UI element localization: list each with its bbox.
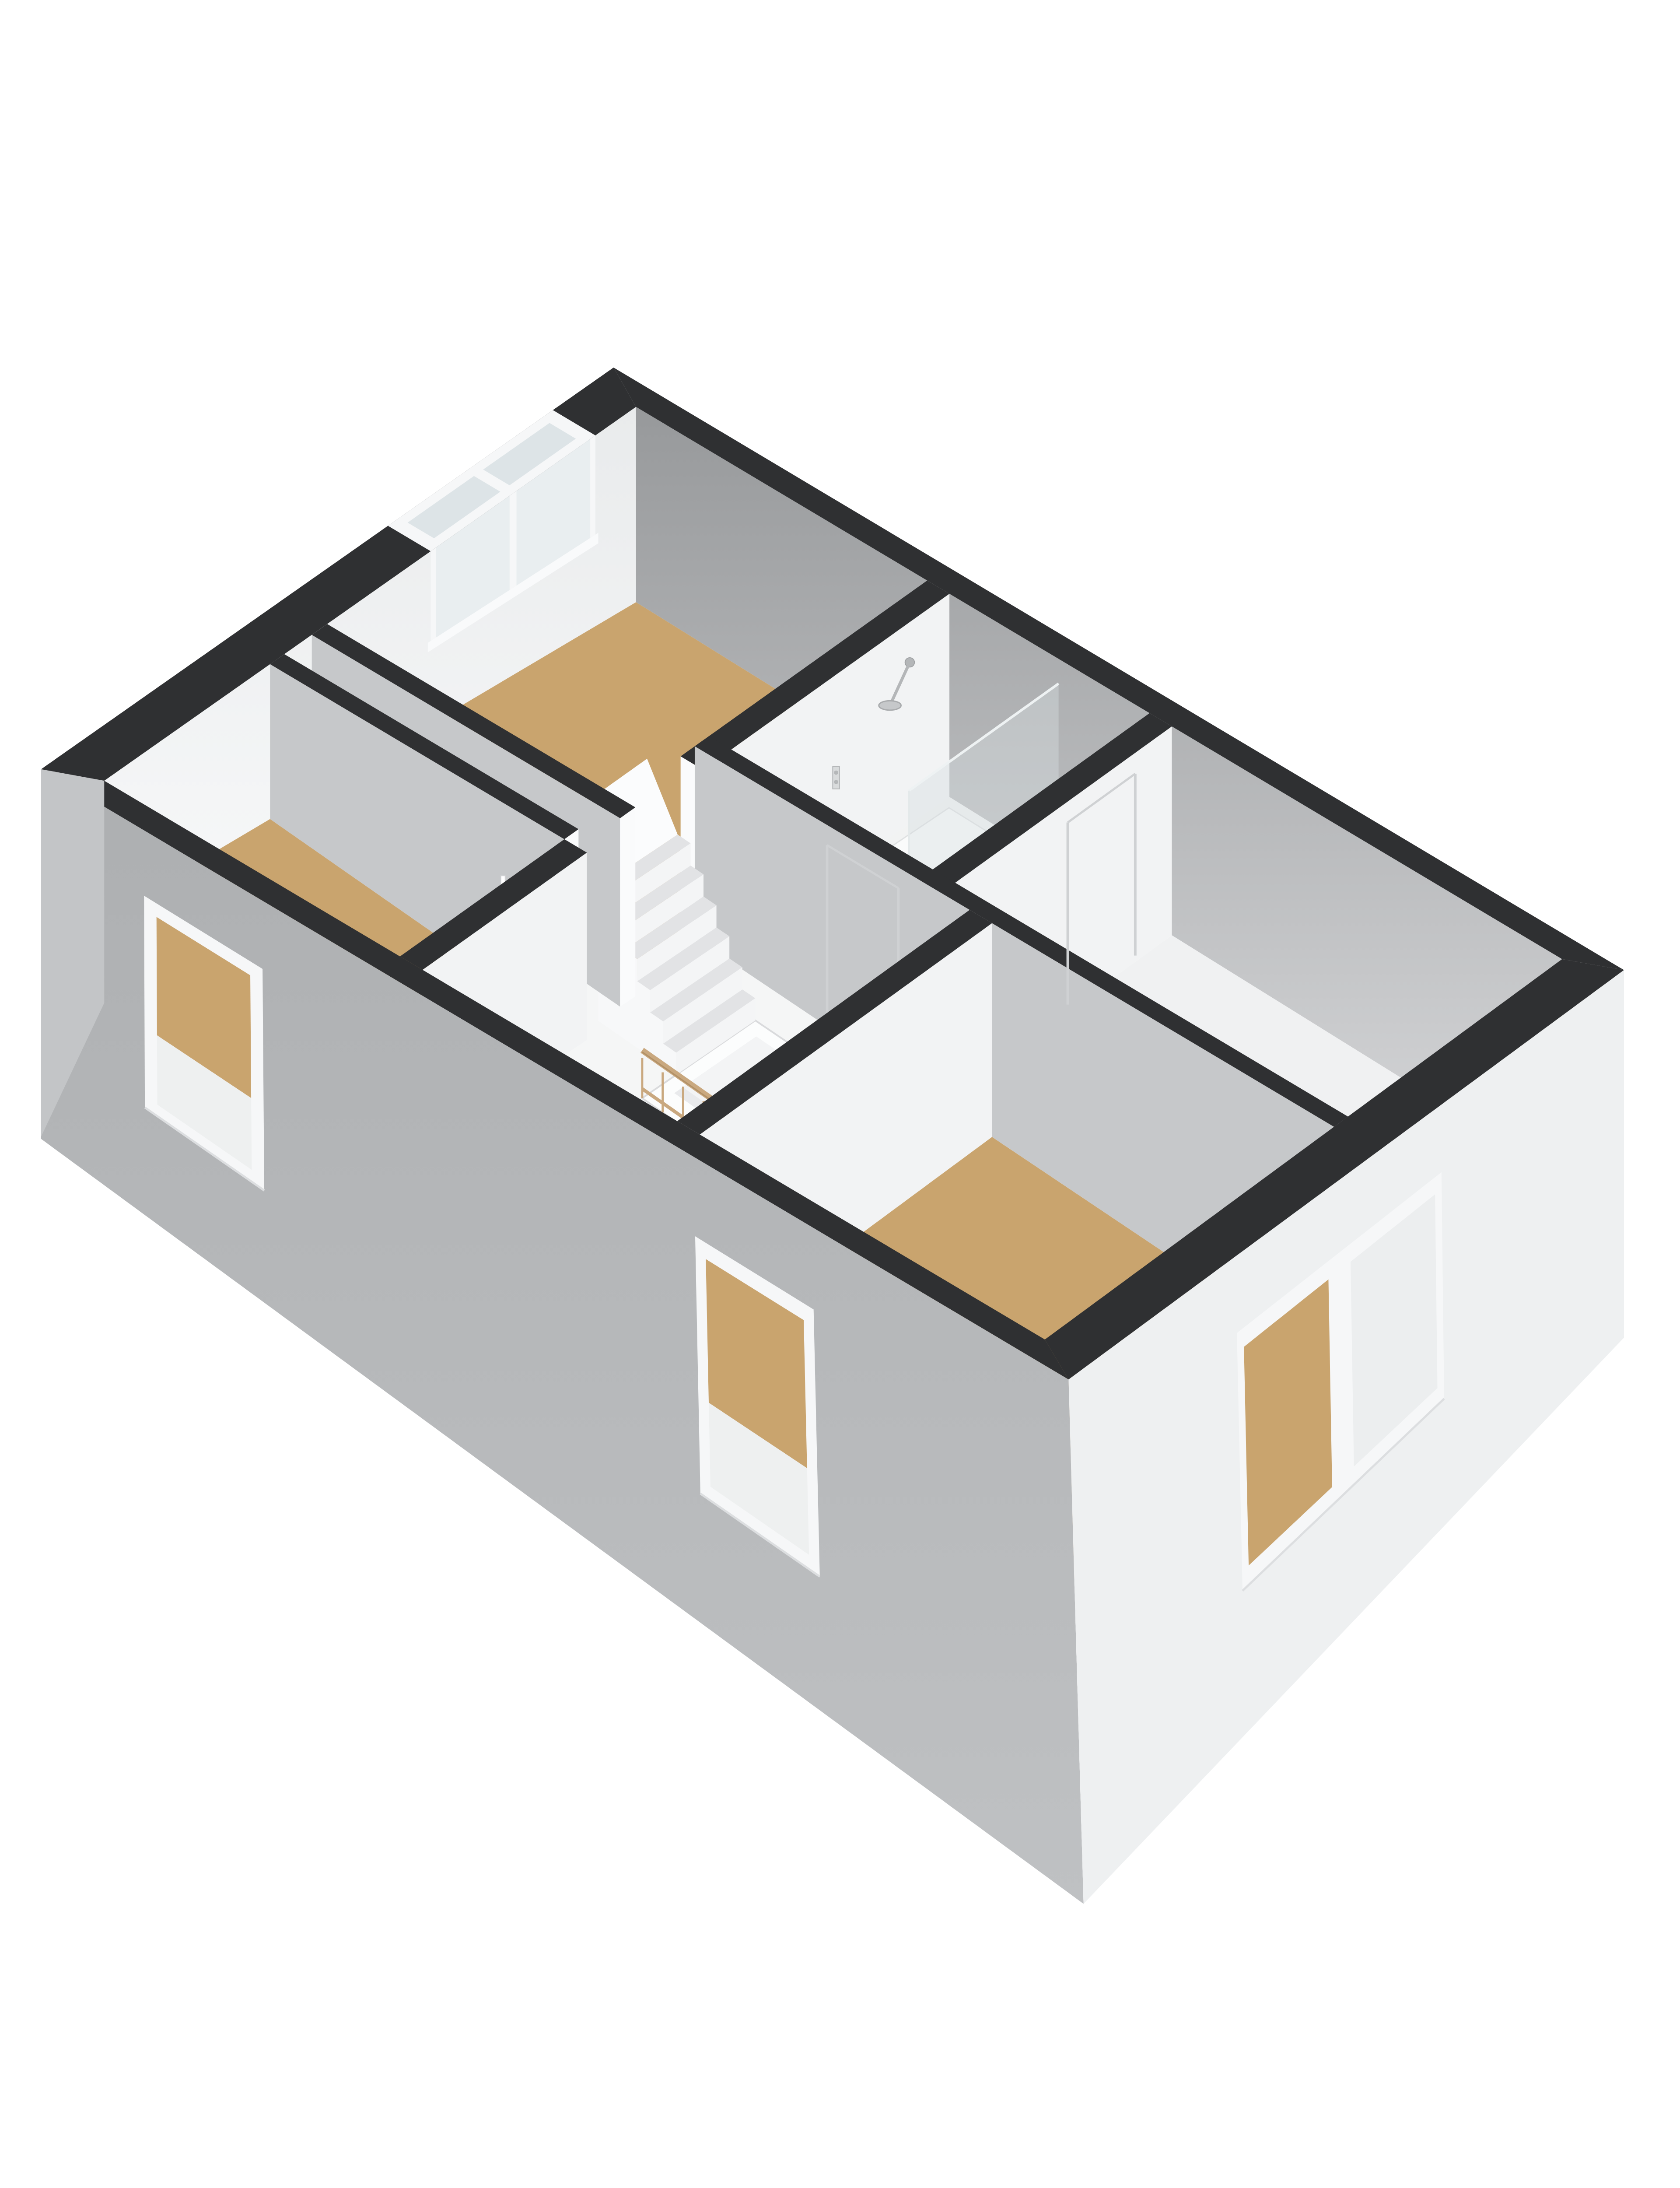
wall-bedroom1-front-end	[620, 807, 635, 1007]
shower-mixer-knob	[834, 771, 838, 775]
shower-mixer-knob	[834, 780, 838, 784]
window-1-mullion	[510, 491, 517, 590]
page	[0, 0, 1680, 2188]
window-1-frame	[430, 547, 436, 641]
floorplan-3d-render	[20, 0, 1660, 2188]
shower-mixer	[833, 767, 840, 789]
window-1-frame	[590, 435, 595, 538]
shower-head	[879, 701, 901, 710]
